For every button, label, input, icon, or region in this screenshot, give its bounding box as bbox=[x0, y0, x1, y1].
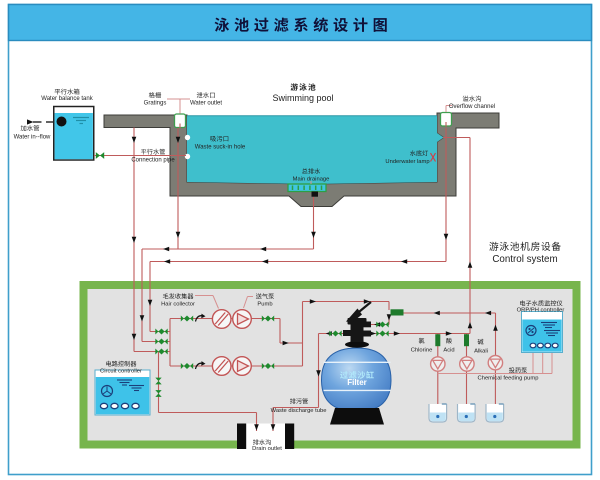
svg-text:Water outlet: Water outlet bbox=[190, 101, 222, 107]
svg-text:Waste suck-in hole: Waste suck-in hole bbox=[195, 145, 246, 151]
svg-text:Waste discharge tube: Waste discharge tube bbox=[271, 408, 327, 414]
svg-text:Main drainage: Main drainage bbox=[293, 177, 330, 183]
svg-text:Gratings: Gratings bbox=[144, 101, 167, 107]
svg-text:Alkali: Alkali bbox=[474, 349, 488, 355]
svg-text:Control system: Control system bbox=[492, 254, 557, 265]
svg-text:ORP/PH controller: ORP/PH controller bbox=[517, 307, 565, 313]
svg-text:Chlorine: Chlorine bbox=[411, 348, 433, 354]
svg-text:Underwater lamp: Underwater lamp bbox=[385, 159, 429, 165]
svg-text:Chemical feeding pump: Chemical feeding pump bbox=[478, 376, 539, 382]
svg-text:Filter: Filter bbox=[347, 378, 367, 387]
svg-text:Overflow channel: Overflow channel bbox=[449, 104, 495, 110]
svg-text:Hair collector: Hair collector bbox=[161, 302, 195, 308]
svg-text:Swimming pool: Swimming pool bbox=[272, 93, 333, 103]
svg-text:Pumb: Pumb bbox=[257, 302, 272, 308]
svg-text:Drain outlet: Drain outlet bbox=[252, 446, 282, 452]
svg-text:Circuit controller: Circuit controller bbox=[100, 369, 142, 375]
svg-text:Water in--flow: Water in--flow bbox=[14, 135, 51, 141]
svg-text:Water balance tank: Water balance tank bbox=[41, 96, 93, 102]
svg-text:Connection pipe: Connection pipe bbox=[131, 158, 175, 164]
svg-text:Acid: Acid bbox=[443, 348, 454, 354]
